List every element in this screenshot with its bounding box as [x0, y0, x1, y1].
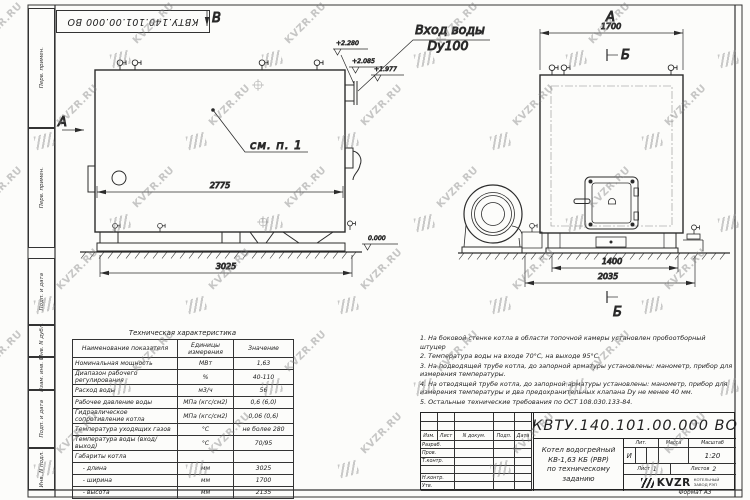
lit-header: Лит. — [624, 439, 659, 448]
top-stamp: КВТУ.140.101.00.000 ВО — [56, 10, 210, 33]
col-podp: Подп. — [494, 431, 515, 441]
elev-zero: 0.000 — [368, 235, 386, 242]
table-cell: °С — [178, 436, 234, 451]
note-item: 4. На отводящей трубе котла, до запорной… — [420, 380, 733, 397]
table-cell: - длина — [73, 463, 178, 475]
product-title-line3: по техническому заданию — [534, 465, 623, 484]
table-cell — [178, 451, 234, 463]
table-cell: 1700 — [234, 475, 294, 487]
view-label-a-left: А — [57, 115, 67, 130]
table-row: Температура воды (вход/выход)°С70/95 — [73, 436, 294, 451]
tech-table-body: Номинальная мощностьМВт1,63Диапазон рабо… — [73, 358, 294, 499]
scale-header: Масштаб — [689, 439, 736, 448]
side-view: А 1700 Б — [458, 10, 730, 320]
table-cell: Температура уходящих газов — [73, 424, 178, 436]
kvzr-logo-icon — [641, 478, 654, 488]
see-note-label: см. п. 1 — [250, 138, 302, 152]
tech-table: Техническая характеристика Наименование … — [72, 329, 293, 499]
frame-column-label: Инв. N подл. — [28, 448, 55, 490]
row-nkontr: Н.контр. — [421, 474, 455, 482]
col-data: Дата — [515, 431, 532, 441]
note-item: 2. Температура воды на входе 70°С, на вы… — [420, 352, 733, 361]
table-cell: 40-110 — [234, 370, 294, 385]
frame-column-label: Перв. примен. — [28, 8, 55, 128]
table-cell: м3/ч — [178, 385, 234, 397]
dim-2035: 2035 — [598, 272, 618, 281]
elev-1977: +1.977 — [374, 66, 397, 73]
table-cell: °С — [178, 424, 234, 436]
note-item: 3. На подводящей трубе котла, до запорно… — [420, 362, 733, 379]
lit-value: И — [624, 448, 636, 464]
dim-2775: 2775 — [210, 181, 230, 190]
note-item: 5. Остальные технические требования по О… — [420, 398, 733, 407]
table-cell: 1,63 — [234, 358, 294, 370]
table-cell: Гидравлическое сопротивление котла — [73, 409, 178, 424]
table-cell: МПа (кгс/см2) — [178, 397, 234, 409]
table-row: Габариты котла — [73, 451, 294, 463]
product-title: Котел водогрейный КВ-1,63 КБ (РВР) по те… — [534, 439, 624, 491]
drawing-sheet: см. п. 1 2775 3025 — [0, 0, 750, 500]
inlet-label: Вход воды — [415, 22, 485, 37]
elev-2085: +2.085 — [352, 58, 375, 65]
company-line2: ЗАВОД РЭП — [694, 483, 720, 487]
title-block-right: Лит. Масса Масштаб И 1:20 Лист 1 Листов … — [624, 439, 736, 491]
col-ndoc: N докум. — [455, 431, 494, 441]
row-prov: Пров. — [421, 449, 455, 457]
sheet-label: Лист — [637, 466, 650, 472]
table-cell: МВт — [178, 358, 234, 370]
title-block: Изм. Лист N докум. Подп. Дата Разраб. Пр… — [420, 412, 735, 490]
table-cell: 2135 — [234, 487, 294, 499]
sheet-value: 1 — [653, 466, 657, 473]
table-cell: мм — [178, 487, 234, 499]
tech-table-title: Техническая характеристика — [72, 329, 293, 337]
table-row: Номинальная мощностьМВт1,63 — [73, 358, 294, 370]
dim-1400: 1400 — [602, 257, 622, 266]
dim-1700: 1700 — [601, 22, 621, 31]
table-cell: Габариты котла — [73, 451, 178, 463]
table-cell: - высота — [73, 487, 178, 499]
table-row: Рабочее давление водыМПа (кгс/см2)0,6 (6… — [73, 397, 294, 409]
table-cell: Температура воды (вход/выход) — [73, 436, 178, 451]
table-cell: Расход воды — [73, 385, 178, 397]
front-view: см. п. 1 2775 3025 — [57, 11, 490, 277]
frame-column-label: Взам. инв. N — [28, 357, 55, 390]
top-stamp-number: КВТУ.140.101.00.000 ВО — [67, 16, 198, 27]
row-tkontr: Т.контр. — [421, 458, 455, 466]
table-row: Температура уходящих газов°Сне более 280 — [73, 424, 294, 436]
format-label: Формат А3 — [640, 490, 750, 496]
table-cell: мм — [178, 475, 234, 487]
col-header-units: Единицы измерения — [178, 340, 234, 358]
table-row: Гидравлическое сопротивление котлаМПа (к… — [73, 409, 294, 424]
note-item: 1. На боковой стенке котла в области топ… — [420, 334, 733, 351]
frame-column-label: Подп. и дата — [28, 390, 55, 448]
scale-value: 1:20 — [689, 448, 736, 464]
col-izm: Изм. — [421, 431, 438, 441]
product-title-line1: Котел водогрейный — [534, 446, 623, 456]
col-list: Лист — [438, 431, 455, 441]
notes-list: 1. На боковой стенке котла в области топ… — [420, 334, 733, 408]
table-cell: 56 — [234, 385, 294, 397]
table-row: Расход водым3/ч56 — [73, 385, 294, 397]
col-header-name: Наименование показателя — [73, 340, 178, 358]
frame-column-label: Подп. и дата — [28, 258, 55, 325]
doc-number: КВТУ.140.101.00.000 ВО — [534, 413, 736, 439]
col-header-value: Значение — [234, 340, 294, 358]
sheets-label: Листов — [691, 466, 710, 472]
elev-2280: +2.280 — [336, 40, 359, 47]
table-row: - высотамм2135 — [73, 487, 294, 499]
table-cell: Диапазон рабочего регулирования — [73, 370, 178, 385]
table-cell: - ширина — [73, 475, 178, 487]
mass-value — [659, 448, 689, 464]
table-cell: % — [178, 370, 234, 385]
table-cell: МПа (кгс/см2) — [178, 409, 234, 424]
company-name: KVZR — [657, 477, 691, 489]
table-cell: 0,6 (6,0) — [234, 397, 294, 409]
frame-column-label: Инв. N дубл. — [28, 325, 55, 357]
table-cell: 0,06 (0,6) — [234, 409, 294, 424]
table-cell: Номинальная мощность — [73, 358, 178, 370]
section-label-b-bottom: Б — [613, 305, 622, 320]
title-block-revision-grid: Изм. Лист N докум. Подп. Дата Разраб. Пр… — [421, 413, 534, 491]
sheets-value: 2 — [712, 466, 716, 473]
table-cell: не более 280 — [234, 424, 294, 436]
table-cell — [234, 451, 294, 463]
company-block: KVZR КОТЕЛЬНЫЙ ЗАВОД РЭП — [624, 475, 736, 491]
dim-3025: 3025 — [216, 262, 236, 271]
table-row: Диапазон рабочего регулирования%40-110 — [73, 370, 294, 385]
frame-column-label: Перв. примен. — [28, 128, 55, 248]
table-cell: 70/95 — [234, 436, 294, 451]
row-utv: Утв. — [421, 482, 455, 490]
table-header-row: Наименование показателя Единицы измерени… — [73, 340, 294, 358]
mass-header: Масса — [659, 439, 689, 448]
product-title-line2: КВ-1,63 КБ (РВР) — [534, 456, 623, 466]
table-cell: мм — [178, 463, 234, 475]
table-cell: Рабочее давление воды — [73, 397, 178, 409]
section-label-b-top: Б — [621, 48, 630, 63]
view-label-v: В — [212, 11, 221, 26]
table-cell: 3025 — [234, 463, 294, 475]
table-row: - длинамм3025 — [73, 463, 294, 475]
row-razrab: Разраб. — [421, 441, 455, 449]
table-row: - ширинамм1700 — [73, 475, 294, 487]
